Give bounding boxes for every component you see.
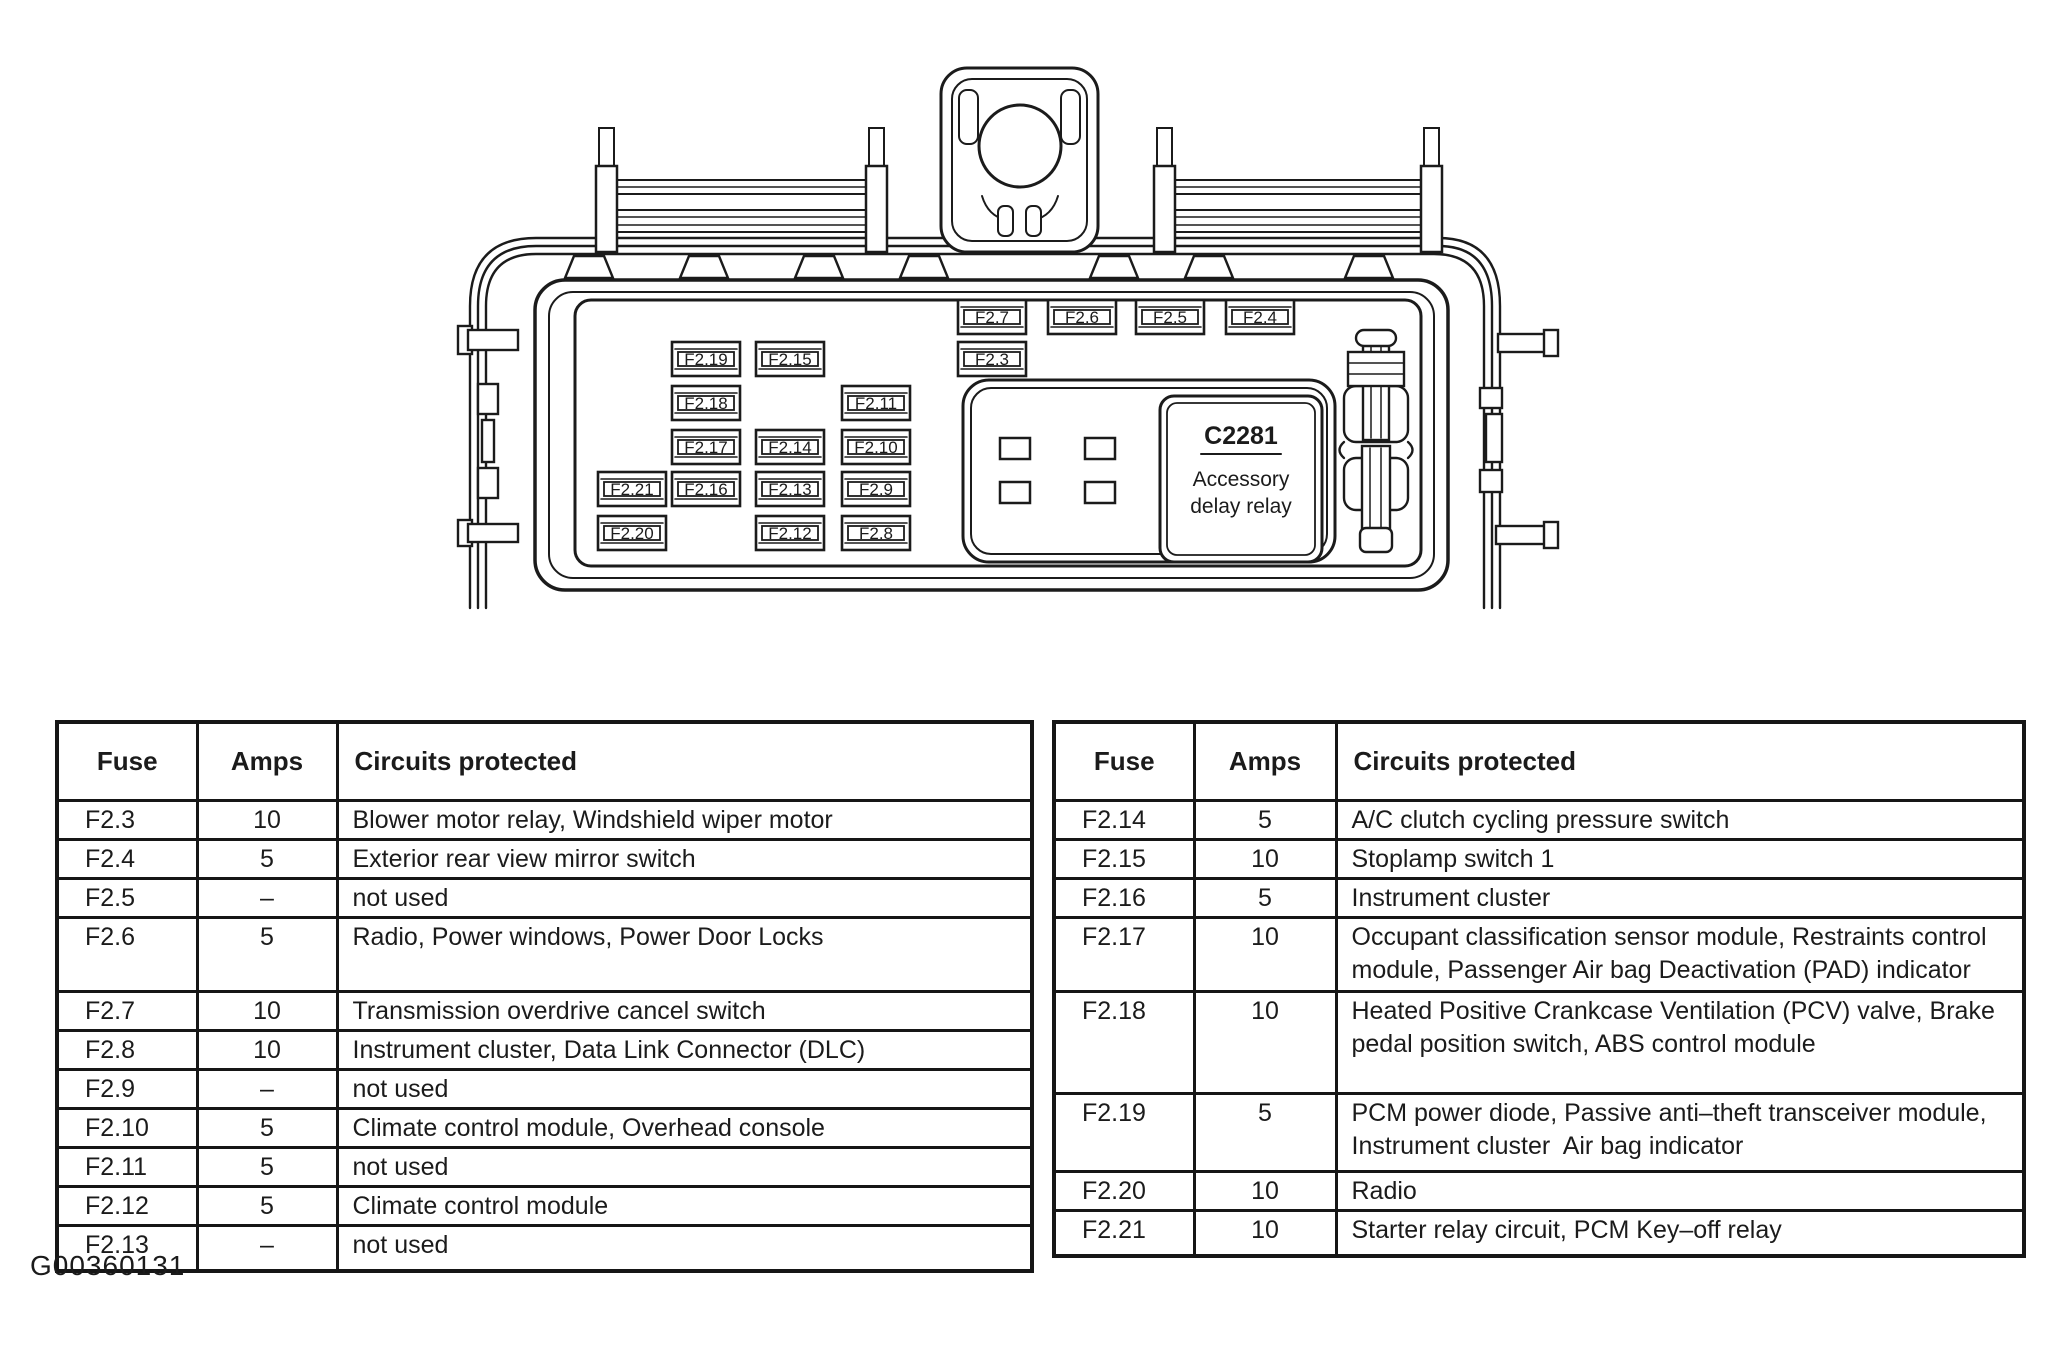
left-mount-tabs <box>458 326 518 546</box>
circuits-text: Climate control module <box>337 1186 1032 1225</box>
table-row-F2.6: F2.65Radio, Power windows, Power Door Lo… <box>57 917 1032 991</box>
fuse-label: F2.15 <box>768 350 811 369</box>
amps-value: 5 <box>197 1108 337 1147</box>
fuse-id: F2.18 <box>1054 991 1194 1093</box>
circuits-text: not used <box>337 1225 1032 1271</box>
circuits-text: Radio, Power windows, Power Door Locks <box>337 917 1032 991</box>
circuits-text: A/C clutch cycling pressure switch <box>1336 800 2024 839</box>
fuse-box-F2.4: F2.4 <box>1226 300 1294 334</box>
table-row-F2.19: F2.195PCM power diode, Passive anti–thef… <box>1054 1093 2024 1171</box>
fuse-id: F2.21 <box>1054 1210 1194 1256</box>
amps-value: – <box>197 1069 337 1108</box>
fuse-box-F2.13: F2.13 <box>756 472 824 506</box>
circuits-text: Heated Positive Crankcase Ventilation (P… <box>1336 991 2024 1093</box>
circuits-text: Blower motor relay, Windshield wiper mot… <box>337 800 1032 839</box>
fuse-label: F2.18 <box>684 394 727 413</box>
fuse-box-F2.20: F2.20 <box>598 516 666 550</box>
fuse-label: F2.10 <box>854 438 897 457</box>
fuse-box-F2.9: F2.9 <box>842 472 910 506</box>
amps-value: 10 <box>1194 839 1336 878</box>
fuse-id: F2.19 <box>1054 1093 1194 1171</box>
fuse-box-F2.17: F2.17 <box>672 430 740 464</box>
fuse-label: F2.14 <box>768 438 811 457</box>
fuse-table-right: FuseAmpsCircuits protectedF2.145A/C clut… <box>1052 720 2026 1258</box>
fuse-id: F2.20 <box>1054 1171 1194 1210</box>
amps-value: 10 <box>1194 991 1336 1093</box>
amps-value: 10 <box>197 800 337 839</box>
fuse-label: F2.13 <box>768 480 811 499</box>
amps-value: 10 <box>197 1030 337 1069</box>
fuse-box-F2.18: F2.18 <box>672 386 740 420</box>
fuse-label: F2.8 <box>859 524 893 543</box>
fuse-table-right: FuseAmpsCircuits protectedF2.145A/C clut… <box>1052 720 2026 1258</box>
fuse-box-F2.10: F2.10 <box>842 430 910 464</box>
fuse-id: F2.3 <box>57 800 197 839</box>
mounting-bracket-left <box>596 128 887 252</box>
fuse-label: F2.9 <box>859 480 893 499</box>
header-row: FuseAmpsCircuits protected <box>1054 722 2024 800</box>
terminal-slot <box>1000 482 1030 503</box>
circuits-text: Instrument cluster <box>1336 878 2024 917</box>
fuse-label: F2.5 <box>1153 308 1187 327</box>
column-header-circuits-protected: Circuits protected <box>1336 722 2024 800</box>
fuse-id: F2.10 <box>57 1108 197 1147</box>
fuse-id: F2.9 <box>57 1069 197 1108</box>
circuits-text: PCM power diode, Passive anti–theft tran… <box>1336 1093 2024 1171</box>
relay-box-C2281: C2281Accessorydelay relay <box>1160 396 1322 562</box>
fuse-id: F2.17 <box>1054 917 1194 991</box>
amps-value: 5 <box>197 1147 337 1186</box>
fuse-label: F2.3 <box>975 350 1009 369</box>
table-row-F2.14: F2.145A/C clutch cycling pressure switch <box>1054 800 2024 839</box>
column-header-fuse: Fuse <box>1054 722 1194 800</box>
fuse-box-F2.7: F2.7 <box>958 300 1026 334</box>
fuse-id: F2.6 <box>57 917 197 991</box>
table-row-F2.5: F2.5–not used <box>57 878 1032 917</box>
amps-value: – <box>197 878 337 917</box>
table-row-F2.3: F2.310Blower motor relay, Windshield wip… <box>57 800 1032 839</box>
fuse-box-F2.11: F2.11 <box>842 386 910 420</box>
column-header-amps: Amps <box>197 722 337 800</box>
fuse-id: F2.14 <box>1054 800 1194 839</box>
body-top-tabs <box>565 256 1393 278</box>
fuse-id: F2.8 <box>57 1030 197 1069</box>
fuse-box-F2.15: F2.15 <box>756 342 824 376</box>
table-row-F2.16: F2.165Instrument cluster <box>1054 878 2024 917</box>
fuse-box-F2.8: F2.8 <box>842 516 910 550</box>
circuits-text: Stoplamp switch 1 <box>1336 839 2024 878</box>
fuse-box-F2.5: F2.5 <box>1136 300 1204 334</box>
fuse-label: F2.6 <box>1065 308 1099 327</box>
relay-id: C2281 <box>1204 422 1278 450</box>
table-row-F2.17: F2.1710Occupant classification sensor mo… <box>1054 917 2024 991</box>
table-row-F2.12: F2.125Climate control module <box>57 1186 1032 1225</box>
circuits-text: Exterior rear view mirror switch <box>337 839 1032 878</box>
table-row-F2.21: F2.2110Starter relay circuit, PCM Key–of… <box>1054 1210 2024 1256</box>
manual-page: F2.7F2.6F2.5F2.4F2.3F2.19F2.15F2.18F2.11… <box>0 0 2054 1353</box>
table-row-F2.4: F2.45Exterior rear view mirror switch <box>57 839 1032 878</box>
terminal-slot <box>1085 482 1115 503</box>
table-row-F2.8: F2.810Instrument cluster, Data Link Conn… <box>57 1030 1032 1069</box>
fuse-box-F2.12: F2.12 <box>756 516 824 550</box>
amps-value: 5 <box>197 917 337 991</box>
fuse-label: F2.7 <box>975 308 1009 327</box>
column-header-fuse: Fuse <box>57 722 197 800</box>
figure-id: G00360131 <box>30 1250 185 1282</box>
header-row: FuseAmpsCircuits protected <box>57 722 1032 800</box>
fuse-label: F2.4 <box>1243 308 1277 327</box>
table-row-F2.11: F2.115not used <box>57 1147 1032 1186</box>
terminal-slot <box>1000 438 1030 459</box>
amps-value: 5 <box>1194 800 1336 839</box>
fuse-box-F2.14: F2.14 <box>756 430 824 464</box>
relay-name-line: delay relay <box>1190 495 1292 518</box>
circuits-text: Radio <box>1336 1171 2024 1210</box>
fuse-box-F2.16: F2.16 <box>672 472 740 506</box>
circuits-text: not used <box>337 1069 1032 1108</box>
fuse-label: F2.19 <box>684 350 727 369</box>
amps-value: 10 <box>1194 1171 1336 1210</box>
fuse-id: F2.11 <box>57 1147 197 1186</box>
table-row-F2.7: F2.710Transmission overdrive cancel swit… <box>57 991 1032 1030</box>
fuse-id: F2.4 <box>57 839 197 878</box>
fuse-label: F2.21 <box>610 480 653 499</box>
fuse-label: F2.20 <box>610 524 653 543</box>
amps-value: 5 <box>197 1186 337 1225</box>
table-row-F2.9: F2.9–not used <box>57 1069 1032 1108</box>
amps-value: 5 <box>1194 878 1336 917</box>
fuse-table-left: FuseAmpsCircuits protectedF2.310Blower m… <box>55 720 1034 1273</box>
fusebox-diagram: F2.7F2.6F2.5F2.4F2.3F2.19F2.15F2.18F2.11… <box>0 0 2054 700</box>
amps-value: 5 <box>197 839 337 878</box>
column-header-amps: Amps <box>1194 722 1336 800</box>
fuse-id: F2.16 <box>1054 878 1194 917</box>
fuse-id: F2.12 <box>57 1186 197 1225</box>
mounting-bracket-right <box>1154 128 1442 252</box>
fuse-label: F2.17 <box>684 438 727 457</box>
fuse-label: F2.11 <box>855 394 897 413</box>
terminal-slot <box>1085 438 1115 459</box>
relay-name-line: Accessory <box>1193 468 1290 491</box>
amps-value: 10 <box>1194 917 1336 991</box>
circuits-text: Instrument cluster, Data Link Connector … <box>337 1030 1032 1069</box>
fuse-box-F2.3: F2.3 <box>958 342 1026 376</box>
amps-value: 10 <box>197 991 337 1030</box>
fuse-label: F2.12 <box>768 524 811 543</box>
table-row-F2.15: F2.1510Stoplamp switch 1 <box>1054 839 2024 878</box>
table-row-F2.10: F2.105Climate control module, Overhead c… <box>57 1108 1032 1147</box>
table-row-F2.20: F2.2010Radio <box>1054 1171 2024 1210</box>
amps-value: 10 <box>1194 1210 1336 1256</box>
column-header-circuits-protected: Circuits protected <box>337 722 1032 800</box>
circuits-text: not used <box>337 1147 1032 1186</box>
circuits-text: Starter relay circuit, PCM Key–off relay <box>1336 1210 2024 1256</box>
circuits-text: Occupant classification sensor module, R… <box>1336 917 2024 991</box>
table-row-F2.13: F2.13–not used <box>57 1225 1032 1271</box>
fuse-box-F2.6: F2.6 <box>1048 300 1116 334</box>
fuse-id: F2.15 <box>1054 839 1194 878</box>
fuse-label: F2.16 <box>684 480 727 499</box>
fuse-box-F2.19: F2.19 <box>672 342 740 376</box>
circuits-text: not used <box>337 878 1032 917</box>
table-row-F2.18: F2.1810Heated Positive Crankcase Ventila… <box>1054 991 2024 1093</box>
fuse-id: F2.5 <box>57 878 197 917</box>
circuits-text: Transmission overdrive cancel switch <box>337 991 1032 1030</box>
amps-value: 5 <box>1194 1093 1336 1171</box>
amps-value: – <box>197 1225 337 1271</box>
fuse-id: F2.7 <box>57 991 197 1030</box>
fuse-box-F2.21: F2.21 <box>598 472 666 506</box>
fuse-table-left: FuseAmpsCircuits protectedF2.310Blower m… <box>55 720 1034 1273</box>
mounting-bracket-center <box>941 68 1098 252</box>
circuits-text: Climate control module, Overhead console <box>337 1108 1032 1147</box>
